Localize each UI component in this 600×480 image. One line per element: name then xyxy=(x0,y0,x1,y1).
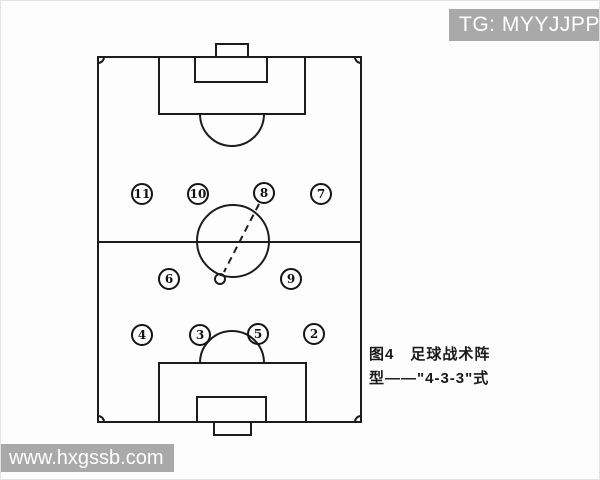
pass-dashed-line xyxy=(224,204,259,272)
player-marker-5: 5 xyxy=(247,323,269,345)
figure-caption: 图4 足球战术阵 型——"4-3-3"式 xyxy=(369,343,529,391)
website-watermark: www.hxgssb.com xyxy=(1,444,174,472)
penalty-arc-top xyxy=(200,114,264,146)
player-marker-2: 2 xyxy=(303,323,325,345)
penalty-area-top xyxy=(159,57,305,114)
goal-area-top xyxy=(195,57,267,82)
player-marker-11: 11 xyxy=(131,183,153,205)
goal-top xyxy=(216,44,248,57)
player-marker-6: 6 xyxy=(158,268,180,290)
pitch-outline xyxy=(98,57,361,422)
goal-area-bottom xyxy=(197,397,266,422)
penalty-area-bottom xyxy=(159,363,306,422)
player-marker-8: 8 xyxy=(253,182,275,204)
player-marker-7: 7 xyxy=(310,183,332,205)
figure-caption-line1: 图4 足球战术阵 xyxy=(369,343,529,367)
pitch-diagram xyxy=(1,1,600,480)
telegram-watermark: TG: MYYJJPP xyxy=(449,9,599,41)
goal-bottom xyxy=(214,422,251,435)
player-marker-3: 3 xyxy=(189,324,211,346)
scanned-figure-page: 111087694352 图4 足球战术阵 型——"4-3-3"式 TG: MY… xyxy=(0,0,600,480)
player-marker-10: 10 xyxy=(187,183,209,205)
figure-caption-line2: 型——"4-3-3"式 xyxy=(369,367,529,391)
player-marker-9: 9 xyxy=(280,268,302,290)
player-marker-4: 4 xyxy=(131,324,153,346)
